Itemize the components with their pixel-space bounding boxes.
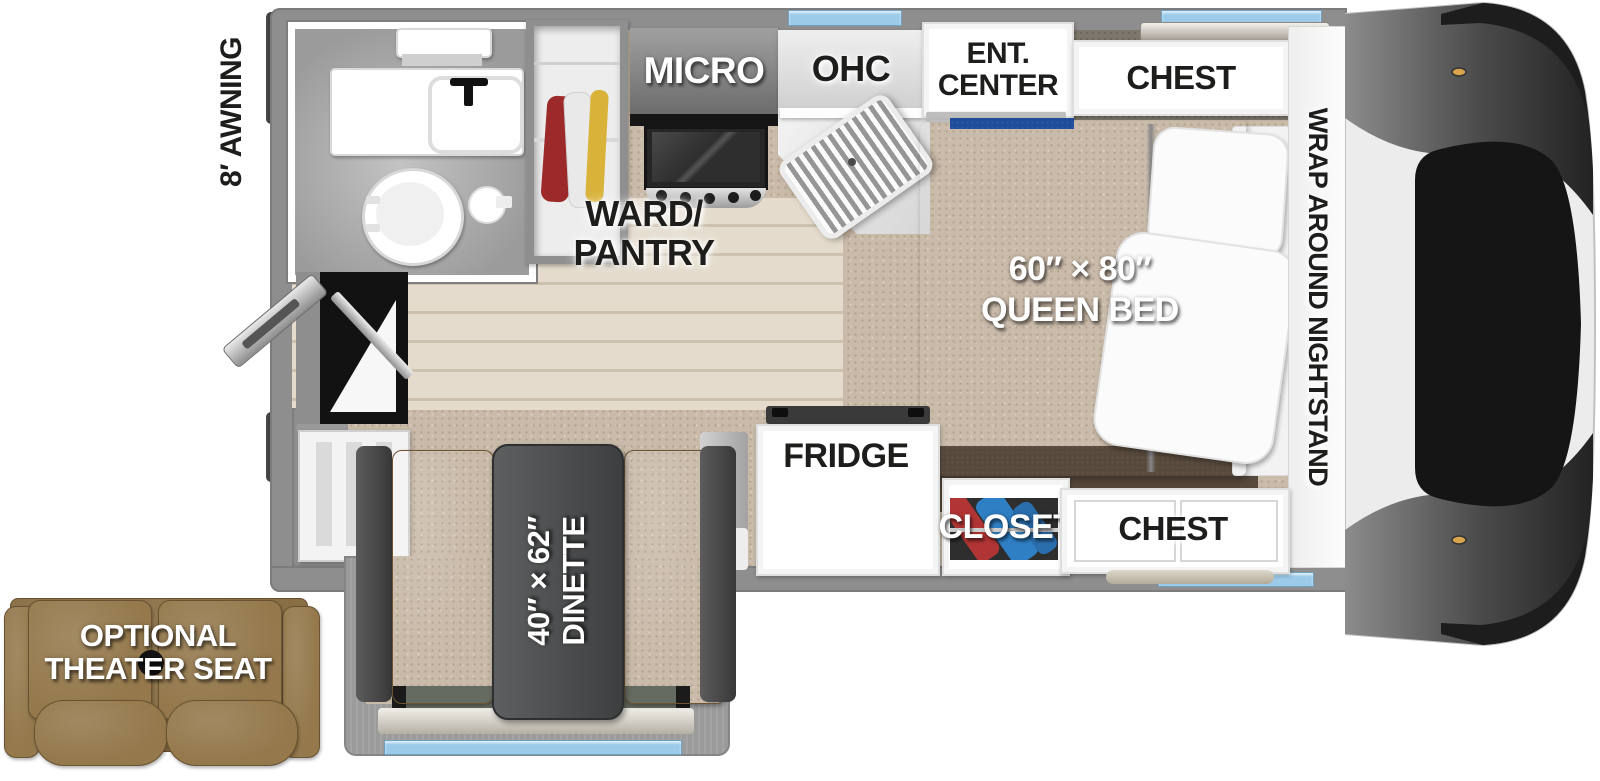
bathroom-vent bbox=[402, 54, 482, 66]
dinette-size-label: 40″ × 62″ bbox=[522, 516, 555, 646]
dinette-label: 40″ × 62″ DINETTE bbox=[517, 481, 595, 681]
chest-front-label: CHEST bbox=[1126, 60, 1235, 96]
theater-seat-cushion bbox=[166, 700, 298, 766]
screen-door-slat bbox=[316, 442, 332, 546]
windshield bbox=[1415, 142, 1581, 507]
theater-seat-label-1: OPTIONAL bbox=[80, 619, 236, 652]
nightstand-label: WRAP AROUND NIGHTSTAND bbox=[1298, 62, 1336, 532]
bed-size-label: 60″ × 80″ bbox=[1009, 251, 1151, 288]
micro-label: MICRO bbox=[644, 51, 765, 91]
entertainment-center: ENT. CENTER bbox=[922, 22, 1074, 118]
fridge-hinge bbox=[772, 408, 788, 417]
toilet-seat bbox=[376, 182, 444, 246]
ent-center-label-2: CENTER bbox=[938, 70, 1058, 102]
sink-drain bbox=[848, 158, 856, 166]
chest-front: CHEST bbox=[1072, 40, 1290, 116]
rear-wall-trim bbox=[1106, 570, 1274, 584]
dinette-name-label: DINETTE bbox=[557, 516, 590, 645]
theater-seat-cushion bbox=[34, 700, 168, 766]
floorplan-stage: 8′ AWNING MICRO OHC ENT. bbox=[0, 0, 1600, 781]
fridge-hinge bbox=[908, 408, 924, 417]
awning-label: 8′ AWNING bbox=[212, 12, 252, 212]
fridge-top bbox=[766, 406, 930, 424]
fridge-label: FRIDGE bbox=[756, 434, 936, 478]
dinette-bench-back bbox=[700, 446, 736, 702]
marker-light-icon bbox=[1452, 68, 1466, 76]
bathroom-sink bbox=[428, 76, 524, 154]
ward-pantry-label-1: WARD/ bbox=[585, 195, 703, 234]
ward-pantry-label: WARD/ PANTRY bbox=[554, 192, 734, 276]
microwave-cabinet: MICRO bbox=[630, 28, 778, 114]
microwave-base bbox=[630, 114, 778, 126]
wardrobe-shelf bbox=[534, 62, 620, 65]
overhead-cabinet: OHC bbox=[778, 30, 924, 108]
window-dinette bbox=[384, 740, 682, 755]
tp-holder-arm bbox=[496, 196, 512, 208]
toilet-hinge bbox=[366, 224, 380, 232]
stove-glass bbox=[652, 132, 760, 182]
theater-seat-label: OPTIONAL THEATER SEAT bbox=[20, 612, 296, 692]
window-top-kitchen bbox=[788, 10, 902, 26]
chest-rear-label: CHEST bbox=[1060, 488, 1286, 570]
bed-name-label: QUEEN BED bbox=[981, 292, 1179, 329]
dinette-bench bbox=[392, 450, 494, 704]
ohc-label: OHC bbox=[812, 50, 891, 89]
stove-knob bbox=[750, 190, 761, 201]
ward-pantry-label-2: PANTRY bbox=[574, 234, 715, 273]
queen-bed-label: 60″ × 80″ QUEEN BED bbox=[940, 238, 1220, 342]
theater-seat-label-2: THEATER SEAT bbox=[44, 652, 271, 685]
faucet-stem-icon bbox=[464, 84, 473, 106]
marker-light-icon bbox=[1452, 536, 1466, 544]
ent-center-label-1: ENT. bbox=[966, 38, 1029, 70]
truck-cab-nose bbox=[1345, 0, 1600, 648]
toilet-hinge bbox=[366, 196, 380, 204]
dinette-bench-back bbox=[356, 446, 392, 702]
